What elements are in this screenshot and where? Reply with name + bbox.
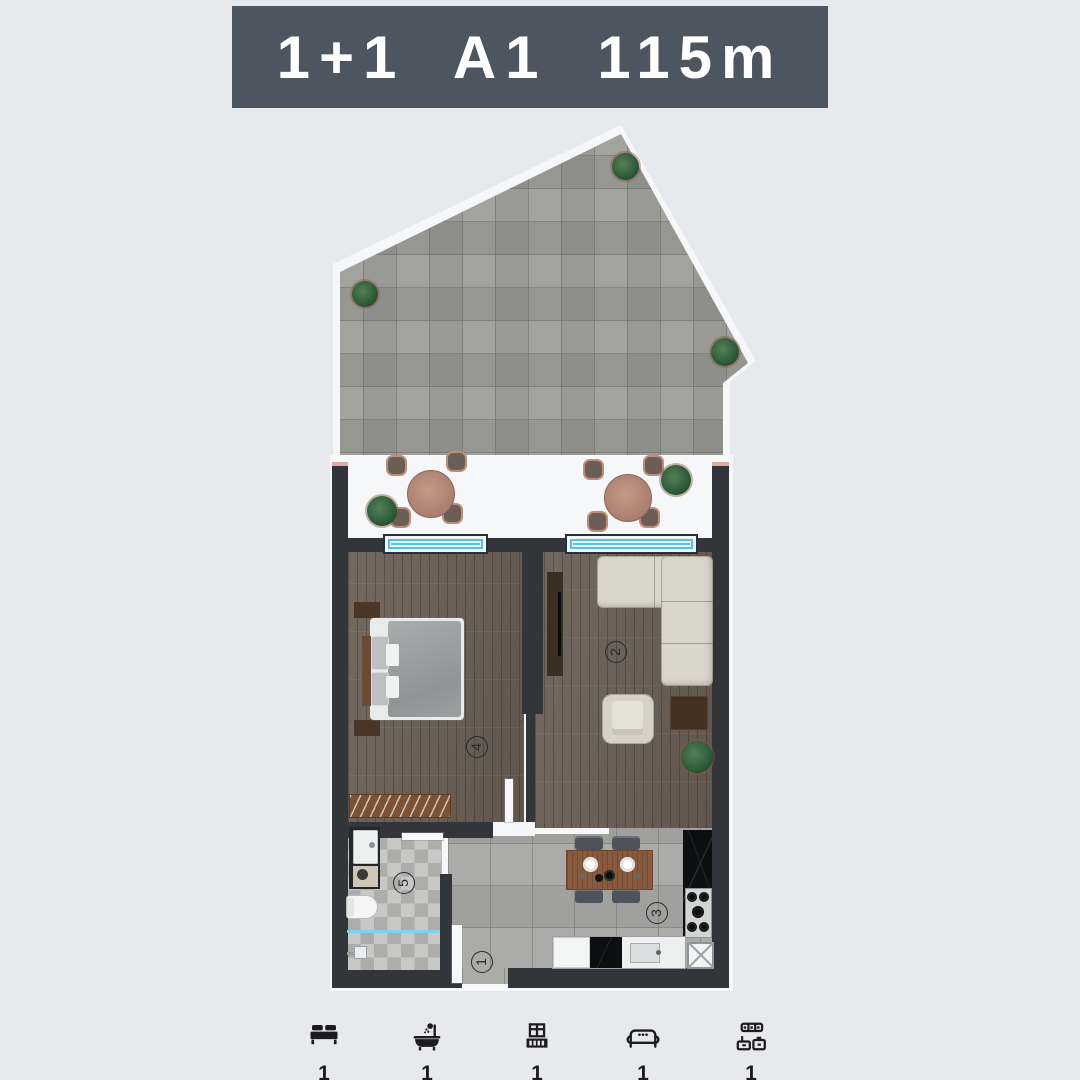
bathroom-count: 1 — [382, 1062, 472, 1080]
patio-set-left — [384, 447, 476, 539]
dining-chair — [612, 836, 640, 850]
legend-item-bedroom: 1 — [279, 1022, 369, 1080]
living-kitchen-threshold — [535, 828, 609, 834]
terrace-plant — [612, 153, 639, 180]
room-label-living-room: 2 — [605, 641, 627, 663]
bed-cushion — [386, 644, 399, 666]
room-label-bathroom: 5 — [393, 872, 415, 894]
patio-chair — [386, 455, 407, 476]
cooktop — [685, 888, 712, 938]
bedroom-count: 1 — [279, 1062, 369, 1080]
pot — [595, 874, 603, 882]
burner — [699, 922, 709, 932]
bed-headboard — [362, 636, 371, 706]
plan-title-banner: 1+1 A1 115m — [232, 6, 828, 108]
patio-chair — [587, 511, 608, 532]
burner — [687, 922, 697, 932]
bathroom-vanity — [349, 827, 380, 889]
bedroom-door-leaf — [505, 779, 513, 822]
dining-table — [567, 851, 652, 889]
cabinet-door — [553, 937, 590, 968]
tv-icon — [558, 592, 561, 656]
pot — [604, 870, 615, 881]
legend-item-kitchen: 1 — [706, 1022, 796, 1080]
sofa-icon — [624, 1039, 662, 1056]
bed — [370, 618, 464, 720]
balcony-count: 1 — [492, 1062, 582, 1080]
bathroom-door-leaf — [402, 833, 443, 840]
sofa-right-arm — [661, 556, 713, 686]
left-wall-cap-accent — [332, 462, 348, 466]
burner — [699, 892, 709, 902]
dining-chair — [575, 836, 603, 850]
dining-chair — [575, 889, 603, 903]
living-room-plant — [681, 741, 713, 773]
faucet — [656, 950, 661, 955]
bed-cushion — [386, 676, 399, 698]
bedroom-divider-thin-wall — [526, 714, 535, 824]
patio-chair — [583, 459, 604, 480]
kitchen-count: 1 — [706, 1062, 796, 1080]
room-number: 2 — [607, 648, 623, 656]
dining-set — [565, 836, 655, 904]
counter-marble-section — [590, 937, 622, 968]
room-label-entrance: 1 — [471, 951, 493, 973]
patio-table — [407, 470, 455, 518]
terrace-plant — [711, 338, 739, 366]
tv-console — [547, 572, 563, 676]
plate — [583, 857, 598, 872]
room-label-bedroom: 4 — [466, 736, 488, 758]
nightstand — [354, 602, 380, 618]
patio-set-right — [581, 451, 673, 543]
entry-door-leaf — [452, 925, 462, 983]
shower-glass-line — [347, 930, 439, 933]
bathtub-icon — [410, 1039, 444, 1056]
dining-chair — [612, 889, 640, 903]
bathroom-accessory — [357, 869, 368, 880]
toilet — [347, 896, 377, 918]
room-number: 1 — [473, 958, 489, 966]
room-number: 3 — [648, 909, 664, 917]
terrace-plant — [367, 496, 397, 526]
legend-item-living-room: 1 — [598, 1022, 688, 1080]
toilet-tank — [347, 898, 354, 916]
appliance-shaft — [687, 942, 714, 969]
armchair — [602, 694, 654, 744]
entry-door-sill — [462, 984, 508, 990]
plate — [620, 857, 635, 872]
patio-chair — [643, 455, 664, 476]
shower-drain — [354, 946, 367, 959]
patio-table — [604, 474, 652, 522]
bedroom-door-threshold — [493, 822, 535, 836]
bedroom-window-glass-line — [391, 543, 480, 545]
right-wall — [712, 458, 729, 988]
table-item — [580, 873, 586, 879]
bedroom-living-divider-wall — [522, 550, 543, 714]
kitchen-icon — [733, 1039, 769, 1056]
room-number: 5 — [395, 879, 411, 887]
coffee-table — [670, 696, 708, 730]
armchair-seat — [612, 701, 643, 735]
bathroom-sink — [353, 830, 378, 864]
left-wall — [332, 458, 348, 988]
terrace-plant — [352, 281, 378, 307]
room-number: 4 — [468, 743, 484, 751]
facade-wall-segment-1 — [348, 538, 385, 552]
nightstand — [354, 720, 380, 736]
bottom-wall-left — [332, 970, 462, 988]
burner — [692, 906, 704, 918]
table-item — [635, 873, 641, 879]
room-label-kitchen: 3 — [646, 902, 668, 924]
balcony-icon — [520, 1039, 554, 1056]
floor-plan-page: 1+1 A1 115m — [0, 0, 1080, 1080]
plan-title: 1+1 A1 115m — [277, 23, 784, 92]
patio-chair — [446, 451, 467, 472]
kitchen-counter-bottom — [553, 937, 685, 968]
bed-icon — [306, 1039, 342, 1056]
legend-item-bathroom: 1 — [382, 1022, 472, 1080]
living-room-count: 1 — [598, 1062, 688, 1080]
right-wall-cap-accent — [712, 462, 729, 466]
terrace-plant — [661, 465, 691, 495]
bedroom-dresser — [350, 795, 450, 817]
bed-blanket — [388, 621, 461, 717]
bathroom-right-wall — [440, 874, 452, 972]
burner — [687, 892, 697, 902]
bottom-wall-right — [508, 968, 714, 988]
facade-wall-segment-3 — [696, 538, 712, 552]
living-window-glass-line — [573, 543, 690, 545]
sink-faucet — [369, 842, 375, 848]
legend-item-balcony: 1 — [492, 1022, 582, 1080]
